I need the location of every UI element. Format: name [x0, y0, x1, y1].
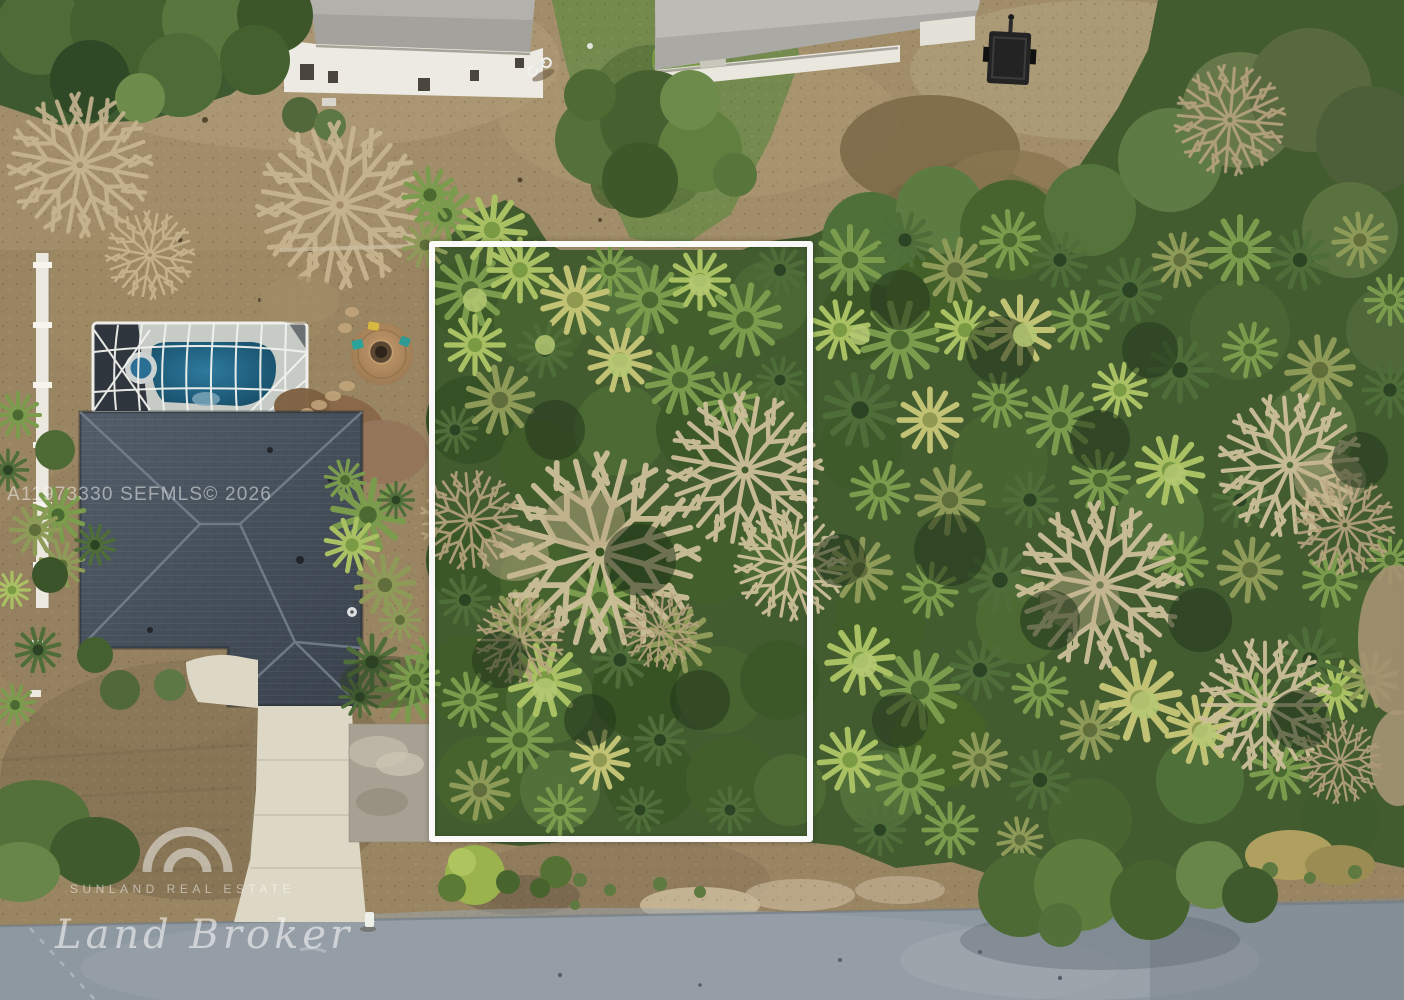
sunland-arch-icon — [141, 820, 234, 874]
ground-debris — [587, 43, 593, 49]
brand-script-watermark: Land Broker — [55, 912, 353, 958]
lot-boundary-outline — [429, 241, 813, 842]
agency-name-watermark: SUNLAND REAL ESTATE — [70, 882, 295, 896]
aerial-photo: A11973330 SEFMLS© 2026 SUNLAND REAL ESTA… — [0, 0, 1404, 1000]
utility-pad — [348, 724, 438, 842]
mls-watermark: A11973330 SEFMLS© 2026 — [7, 484, 272, 506]
